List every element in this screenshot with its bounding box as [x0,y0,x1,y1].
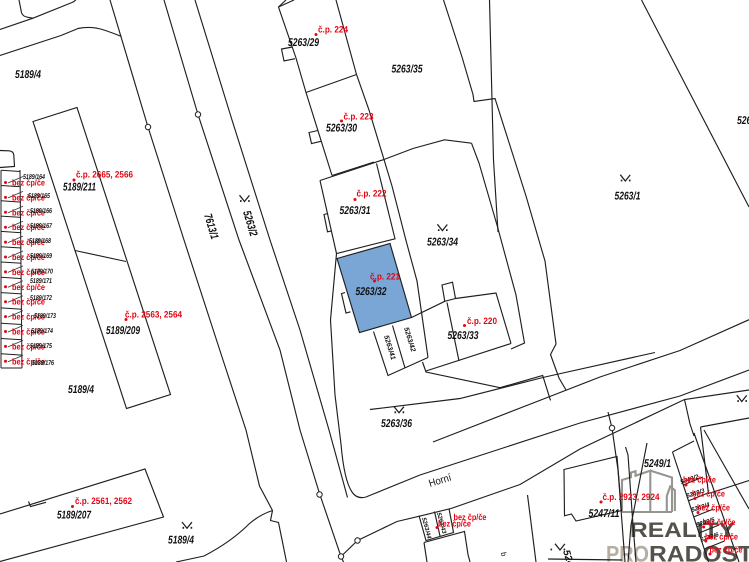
svg-text:5189/174: 5189/174 [31,327,53,335]
svg-text:5189/167: 5189/167 [30,222,53,230]
svg-text:5263/28: 5263/28 [737,115,749,127]
svg-text:5263/36: 5263/36 [381,418,413,430]
svg-text:č.p. 222: č.p. 222 [357,189,387,199]
svg-text:5263/1: 5263/1 [615,191,641,203]
svg-text:č.p. 2923, 2924: č.p. 2923, 2924 [603,492,661,502]
svg-text:5263/35: 5263/35 [392,64,424,76]
svg-text:5189/170: 5189/170 [31,268,53,276]
svg-text:5189/168: 5189/168 [29,237,51,245]
svg-text:5189/164: 5189/164 [23,173,45,181]
svg-text:bez čp/če: bez čp/če [705,532,738,542]
svg-text:č.p. 2561, 2562: č.p. 2561, 2562 [75,496,132,506]
svg-text:5189/171: 5189/171 [30,277,52,285]
svg-text:5189/166: 5189/166 [30,207,52,215]
svg-text:5189/165: 5189/165 [28,192,50,200]
svg-text:5263/34: 5263/34 [427,237,459,249]
svg-text:č.p. 2563, 2564: č.p. 2563, 2564 [125,310,183,320]
svg-text:bez čp/če: bez čp/če [703,517,736,527]
svg-text:5263/32: 5263/32 [356,286,388,298]
svg-text:5247/11: 5247/11 [589,508,620,520]
svg-text:bez čp/če: bez čp/če [683,475,716,485]
svg-text:5189/4: 5189/4 [68,384,95,396]
svg-text:č.p. 220: č.p. 220 [467,316,497,326]
svg-text:5249/1: 5249/1 [644,458,671,470]
svg-text:bez čp/če: bez čp/če [692,489,725,499]
svg-text:5263/33: 5263/33 [448,330,480,342]
svg-text:bez čp/če: bez čp/če [438,519,471,529]
svg-text:5189/176: 5189/176 [32,359,54,367]
svg-text:5263/30: 5263/30 [326,123,358,135]
svg-text:5189/209: 5189/209 [106,325,141,337]
svg-text:č.p. 2665, 2566: č.p. 2665, 2566 [76,170,133,180]
svg-text:5263/31: 5263/31 [340,205,371,217]
svg-text:5189/4: 5189/4 [15,69,42,81]
svg-text:5189/173: 5189/173 [34,312,56,320]
svg-text:bez čp/če: bez čp/če [710,545,743,555]
svg-text:bez čp/če: bez čp/če [697,503,730,513]
svg-text:5189/169: 5189/169 [30,252,52,260]
svg-text:č.p. 224: č.p. 224 [318,25,349,35]
svg-text:PRO: PRO [606,542,649,562]
svg-text:5189/211: 5189/211 [63,182,96,194]
svg-text:5189/4: 5189/4 [168,535,195,547]
svg-text:5189/175: 5189/175 [30,342,52,350]
svg-text:5263/29: 5263/29 [288,37,320,49]
svg-text:5189/207: 5189/207 [57,510,92,522]
svg-text:č.p. 223: č.p. 223 [344,112,374,122]
svg-text:5189/172: 5189/172 [30,294,52,302]
